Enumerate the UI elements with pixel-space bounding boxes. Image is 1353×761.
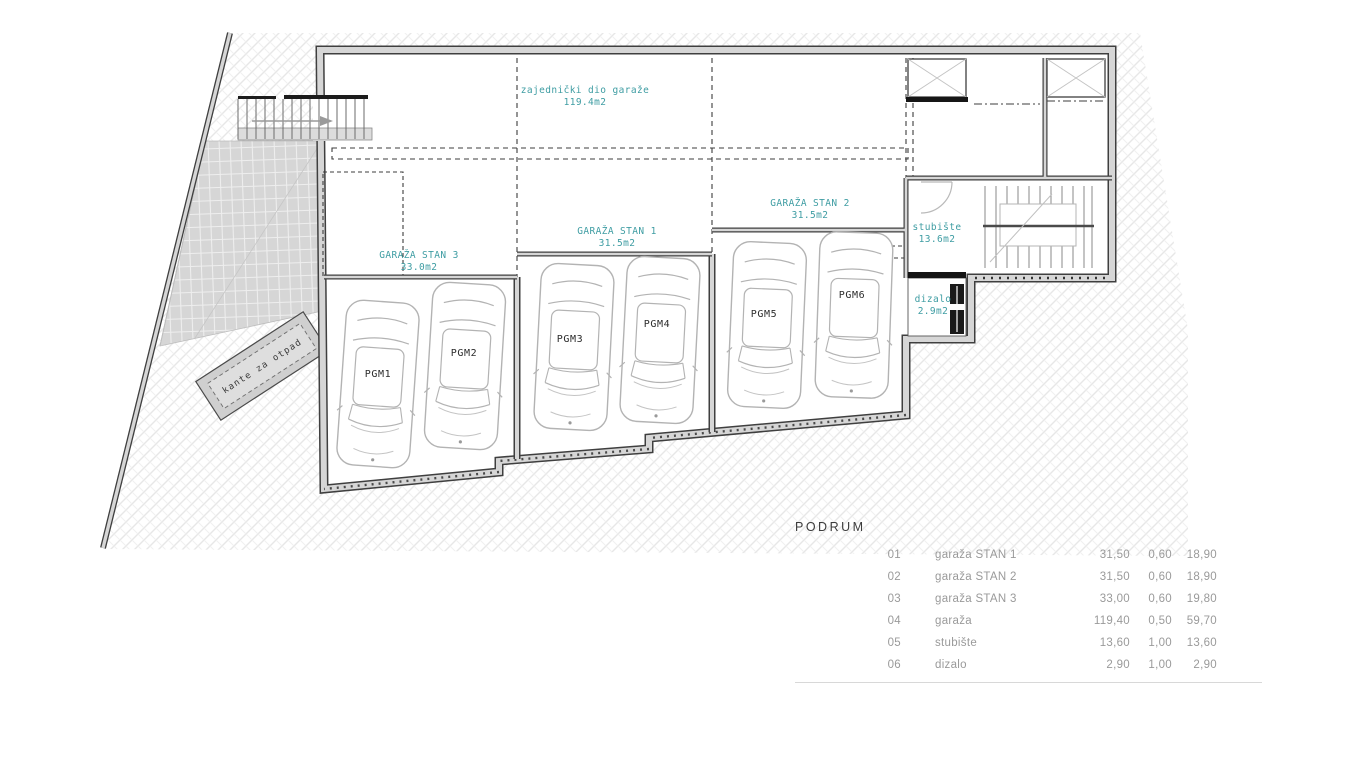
row-coef: 1,00: [1130, 637, 1172, 649]
row-area: 2,90: [1065, 659, 1130, 671]
area-table: PODRUM 01 garaža STAN 1 31,50 0,60 18,90…: [795, 520, 1262, 683]
row-area: 31,50: [1065, 549, 1130, 561]
row-net: 59,70: [1172, 615, 1217, 627]
table-title: PODRUM: [795, 520, 1262, 534]
row-number: 02: [795, 571, 905, 583]
row-net: 2,90: [1172, 659, 1217, 671]
car-pgm1: [333, 299, 422, 469]
label-garaza-stan-3: GARAŽA STAN 3: [379, 249, 459, 261]
table-row: 02 garaža STAN 2 31,50 0,60 18,90: [795, 566, 1262, 588]
label-common-garage: zajednički dio garaže: [521, 85, 650, 96]
row-name: garaža: [905, 615, 1065, 627]
label-common-garage-area: 119.4m2: [564, 97, 607, 108]
row-number: 06: [795, 659, 905, 671]
table-row: 03 garaža STAN 3 33,00 0,60 19,80: [795, 588, 1262, 610]
row-net: 18,90: [1172, 571, 1217, 583]
row-coef: 0,60: [1130, 549, 1172, 561]
light-shaft-left: [906, 59, 968, 102]
row-name: garaža STAN 3: [905, 593, 1065, 605]
row-area: 33,00: [1065, 593, 1130, 605]
row-name: garaža STAN 1: [905, 549, 1065, 561]
car-pgm6: [812, 231, 896, 399]
label-dizalo: dizalo: [915, 294, 952, 305]
car-pgm5: [724, 241, 809, 409]
table-row: 04 garaža 119,40 0,50 59,70: [795, 610, 1262, 632]
row-area: 13,60: [1065, 637, 1130, 649]
label-garaza-stan-1: GARAŽA STAN 1: [577, 225, 657, 237]
row-net: 19,80: [1172, 593, 1217, 605]
label-garaza-stan-1-area: 31.5m2: [599, 238, 636, 249]
label-garaza-stan-2: GARAŽA STAN 2: [770, 197, 850, 209]
table-row: 01 garaža STAN 1 31,50 0,60 18,90: [795, 544, 1262, 566]
row-net: 18,90: [1172, 549, 1217, 561]
table-row: 05 stubište 13,60 1,00 13,60: [795, 632, 1262, 654]
row-name: garaža STAN 2: [905, 571, 1065, 583]
label-stubiste: stubište: [913, 222, 962, 233]
row-number: 04: [795, 615, 905, 627]
car-pgm3: [531, 263, 618, 432]
table-row: 06 dizalo 2,90 1,00 2,90: [795, 654, 1262, 676]
row-area: 31,50: [1065, 571, 1130, 583]
row-number: 03: [795, 593, 905, 605]
label-pgm5: PGM5: [751, 309, 777, 320]
row-net: 13,60: [1172, 637, 1217, 649]
row-number: 05: [795, 637, 905, 649]
label-pgm4: PGM4: [644, 319, 670, 330]
label-dizalo-area: 2.9m2: [918, 306, 949, 317]
row-number: 01: [795, 549, 905, 561]
label-garaza-stan-3-area: 33.0m2: [401, 262, 438, 273]
label-pgm2: PGM2: [451, 348, 477, 359]
floor-plan-page: kante za otpad: [0, 0, 1353, 761]
row-name: stubište: [905, 637, 1065, 649]
label-pgm3: PGM3: [557, 334, 583, 345]
light-shaft-right: [1047, 59, 1105, 97]
row-coef: 0,50: [1130, 615, 1172, 627]
label-pgm1: PGM1: [365, 369, 391, 380]
row-name: dizalo: [905, 659, 1065, 671]
label-pgm6: PGM6: [839, 290, 865, 301]
row-coef: 0,60: [1130, 593, 1172, 605]
label-garaza-stan-2-area: 31.5m2: [792, 210, 829, 221]
row-coef: 0,60: [1130, 571, 1172, 583]
car-pgm4: [617, 256, 704, 425]
row-area: 119,40: [1065, 615, 1130, 627]
car-pgm2: [421, 281, 509, 450]
row-coef: 1,00: [1130, 659, 1172, 671]
label-stubiste-area: 13.6m2: [919, 234, 956, 245]
